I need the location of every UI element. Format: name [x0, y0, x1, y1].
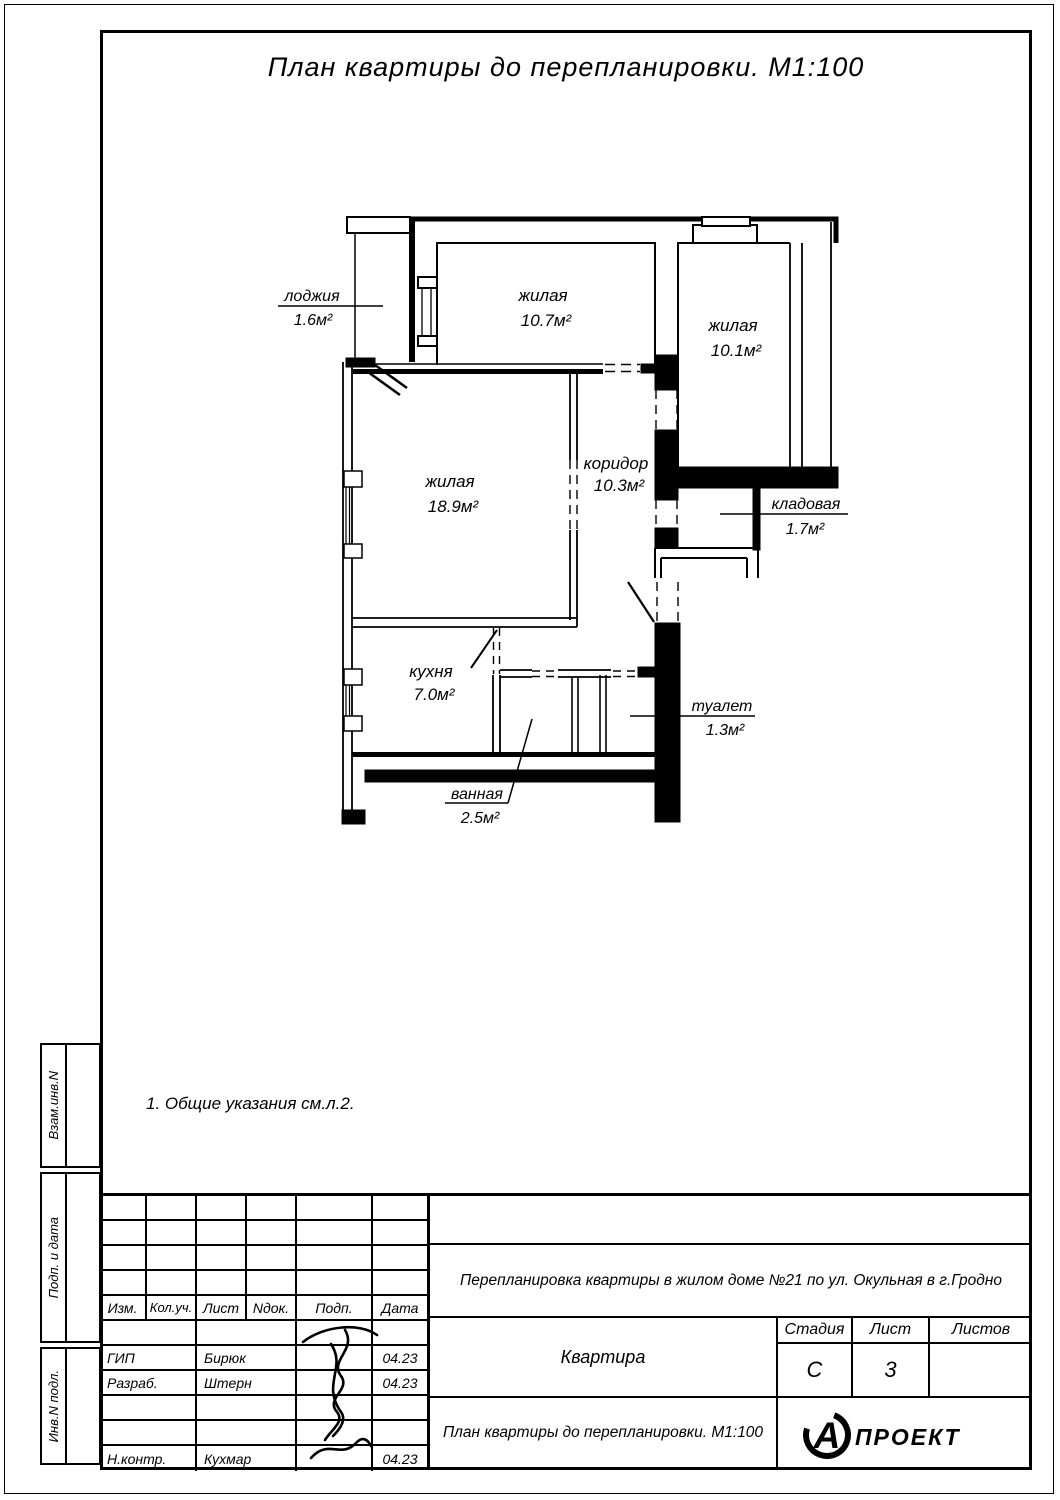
- room-label-living1-area: 10.7м²: [521, 311, 573, 330]
- room-label-storage-name: кладовая: [772, 496, 841, 513]
- window-jamb: [344, 544, 362, 558]
- sidebar-label-cell: Взам.инв.N: [42, 1045, 67, 1166]
- empty-cell: [147, 1246, 197, 1271]
- empty-cell: [100, 1271, 147, 1296]
- entrance-door-leaf: [628, 582, 654, 622]
- vent-shaft-top: [702, 217, 750, 226]
- bearing-wall: [655, 355, 678, 390]
- signature-stroke: [303, 1327, 377, 1342]
- room-label-living2-area: 10.1м²: [711, 341, 763, 360]
- window-jamb: [344, 669, 362, 685]
- vent-shaft: [693, 225, 757, 243]
- staff-role-razrab: Разраб.: [100, 1371, 197, 1396]
- bearing-wall: [655, 528, 678, 548]
- empty-cell: [373, 1221, 427, 1246]
- loggia-corner-pier: [346, 358, 375, 367]
- bearing-wall-horizontal: [655, 467, 838, 488]
- sidebar-label-cell: Инв.N подл.: [42, 1349, 67, 1463]
- empty-cell: [247, 1271, 297, 1296]
- empty-cell: [100, 1321, 197, 1346]
- col-header-ndok: Nдок.: [247, 1296, 297, 1319]
- logo-cell: А ПРОЕКТ: [778, 1398, 1032, 1468]
- col-header-podp: Подп.: [297, 1296, 373, 1319]
- revision-table: Изм. Кол.уч. Лист Nдок. Подп. Дата: [100, 1196, 427, 1319]
- sidebar-label-cell: Подп. и дата: [42, 1174, 67, 1341]
- col-header-list: Лист: [197, 1296, 247, 1319]
- room-label-corridor-area: 10.3м²: [594, 476, 646, 495]
- bearing-wall: [655, 430, 678, 500]
- empty-cell: [197, 1221, 247, 1246]
- room-label-toilet-name: туалет: [692, 698, 753, 715]
- project-title: Перепланировка квартиры в жилом доме №21…: [430, 1245, 1032, 1318]
- staff-name-nkontr: Кухмар: [197, 1446, 297, 1471]
- empty-cell: [147, 1196, 197, 1221]
- room-label-kitchen-area: 7.0м²: [414, 685, 456, 704]
- signature-nkontr: [311, 1439, 371, 1458]
- col-header-data: Дата: [373, 1296, 427, 1319]
- window-jamb: [344, 471, 362, 487]
- page-title: План квартиры до перепланировки. М1:100: [100, 52, 1032, 83]
- empty-cell: [197, 1421, 297, 1446]
- empty-cell: [197, 1321, 297, 1346]
- general-note: 1. Общие указания см.л.2.: [146, 1094, 355, 1114]
- empty-cell: [147, 1221, 197, 1246]
- empty-cell: [100, 1421, 197, 1446]
- logo-text: ПРОЕКТ: [855, 1424, 961, 1450]
- object-name: Квартира: [430, 1318, 778, 1398]
- sheet-value: 3: [853, 1344, 930, 1398]
- empty-cell: [100, 1221, 147, 1246]
- balcony-door-leaf: [375, 365, 407, 388]
- col-header-koluch: Кол.уч.: [147, 1296, 197, 1319]
- staff-role-nkontr: Н.контр.: [100, 1446, 197, 1471]
- drawing-title: План квартиры до перепланировки. М1:100: [430, 1398, 778, 1468]
- sidebar-box-vzam: Взам.инв.N: [40, 1043, 101, 1168]
- staff-role-gip: ГИП: [100, 1346, 197, 1371]
- empty-cell: [297, 1221, 373, 1246]
- empty-cell: [100, 1196, 147, 1221]
- window-jamb: [418, 336, 437, 346]
- empty-cell: [373, 1271, 427, 1296]
- signatures-overlay: [295, 1318, 385, 1470]
- wall-tick: [641, 364, 655, 373]
- room-label-bath-area: 2.5м²: [460, 810, 500, 827]
- window-jamb: [418, 277, 437, 288]
- empty-cell: [197, 1271, 247, 1296]
- storage-right-wall: [753, 488, 760, 550]
- sidebar-label-inv: Инв.N подл.: [46, 1370, 61, 1442]
- walls-group: [342, 217, 838, 824]
- balcony-door-leaf2: [368, 372, 400, 395]
- empty-cell: [247, 1246, 297, 1271]
- company-logo: А ПРОЕКТ: [795, 1402, 1015, 1464]
- room-label-living3-name: жилая: [424, 472, 474, 491]
- empty-cell: [373, 1196, 427, 1221]
- staff-name-razrab: Штерн: [197, 1371, 297, 1396]
- empty-cell: [197, 1396, 297, 1421]
- room-label-living1-name: жилая: [517, 286, 567, 305]
- top-exterior-wall: [347, 219, 836, 243]
- room-label-living2-name: жилая: [707, 316, 757, 335]
- room-label-bath-name: ванная: [451, 786, 503, 803]
- empty-cell: [373, 1246, 427, 1271]
- bearing-wall: [655, 623, 680, 822]
- loggia-parapet-cap: [347, 217, 410, 233]
- sidebar-label-vzam: Взам.инв.N: [46, 1071, 61, 1140]
- sheets-header: Листов: [930, 1318, 1032, 1344]
- empty-cell: [247, 1196, 297, 1221]
- logo-letter: А: [813, 1415, 841, 1456]
- sheets-value: [930, 1344, 1032, 1398]
- empty-cell: [197, 1196, 247, 1221]
- window-jamb: [344, 716, 362, 731]
- empty-cell: [297, 1271, 373, 1296]
- empty-cell: [247, 1221, 297, 1246]
- signature-gip: [325, 1330, 348, 1440]
- room-label-storage-area: 1.7м²: [786, 521, 825, 538]
- col-header-izm: Изм.: [100, 1296, 147, 1319]
- wall-stub: [638, 667, 655, 677]
- empty-cell: [297, 1246, 373, 1271]
- sidebar-box-podp: Подп. и дата: [40, 1172, 101, 1343]
- empty-cell: [297, 1196, 373, 1221]
- sheet-header: Лист: [853, 1318, 930, 1344]
- bottom-left-pier: [342, 810, 365, 824]
- bottom-wall-outer: [365, 770, 655, 782]
- bath-leader-diagonal: [508, 719, 532, 803]
- sidebar-label-podp: Подп. и дата: [46, 1217, 61, 1298]
- room-label-kitchen-name: кухня: [409, 662, 452, 681]
- staff-name-gip: Бирюк: [197, 1346, 297, 1371]
- empty-cell: [100, 1246, 147, 1271]
- empty-cell: [147, 1271, 197, 1296]
- empty-cell: [197, 1246, 247, 1271]
- room-label-loggia-name: лоджия: [283, 288, 340, 305]
- empty-cell: [100, 1396, 197, 1421]
- room-label-living3-area: 18.9м²: [428, 497, 480, 516]
- doc-code-cell: [430, 1196, 1032, 1245]
- room-label-corridor-name: коридор: [584, 454, 649, 473]
- stage-header: Стадия: [778, 1318, 853, 1344]
- room-label-loggia-area: 1.6м²: [294, 312, 333, 329]
- titleblock-right: Перепланировка квартиры в жилом доме №21…: [427, 1193, 1032, 1468]
- leader-lines: [278, 306, 848, 803]
- stage-value: С: [778, 1344, 853, 1398]
- sidebar-box-inv: Инв.N подл.: [40, 1347, 101, 1465]
- room-label-toilet-area: 1.3м²: [706, 722, 745, 739]
- floor-plan: жилая 10.7м² жилая 10.1м² жилая 18.9м² к…: [270, 200, 870, 840]
